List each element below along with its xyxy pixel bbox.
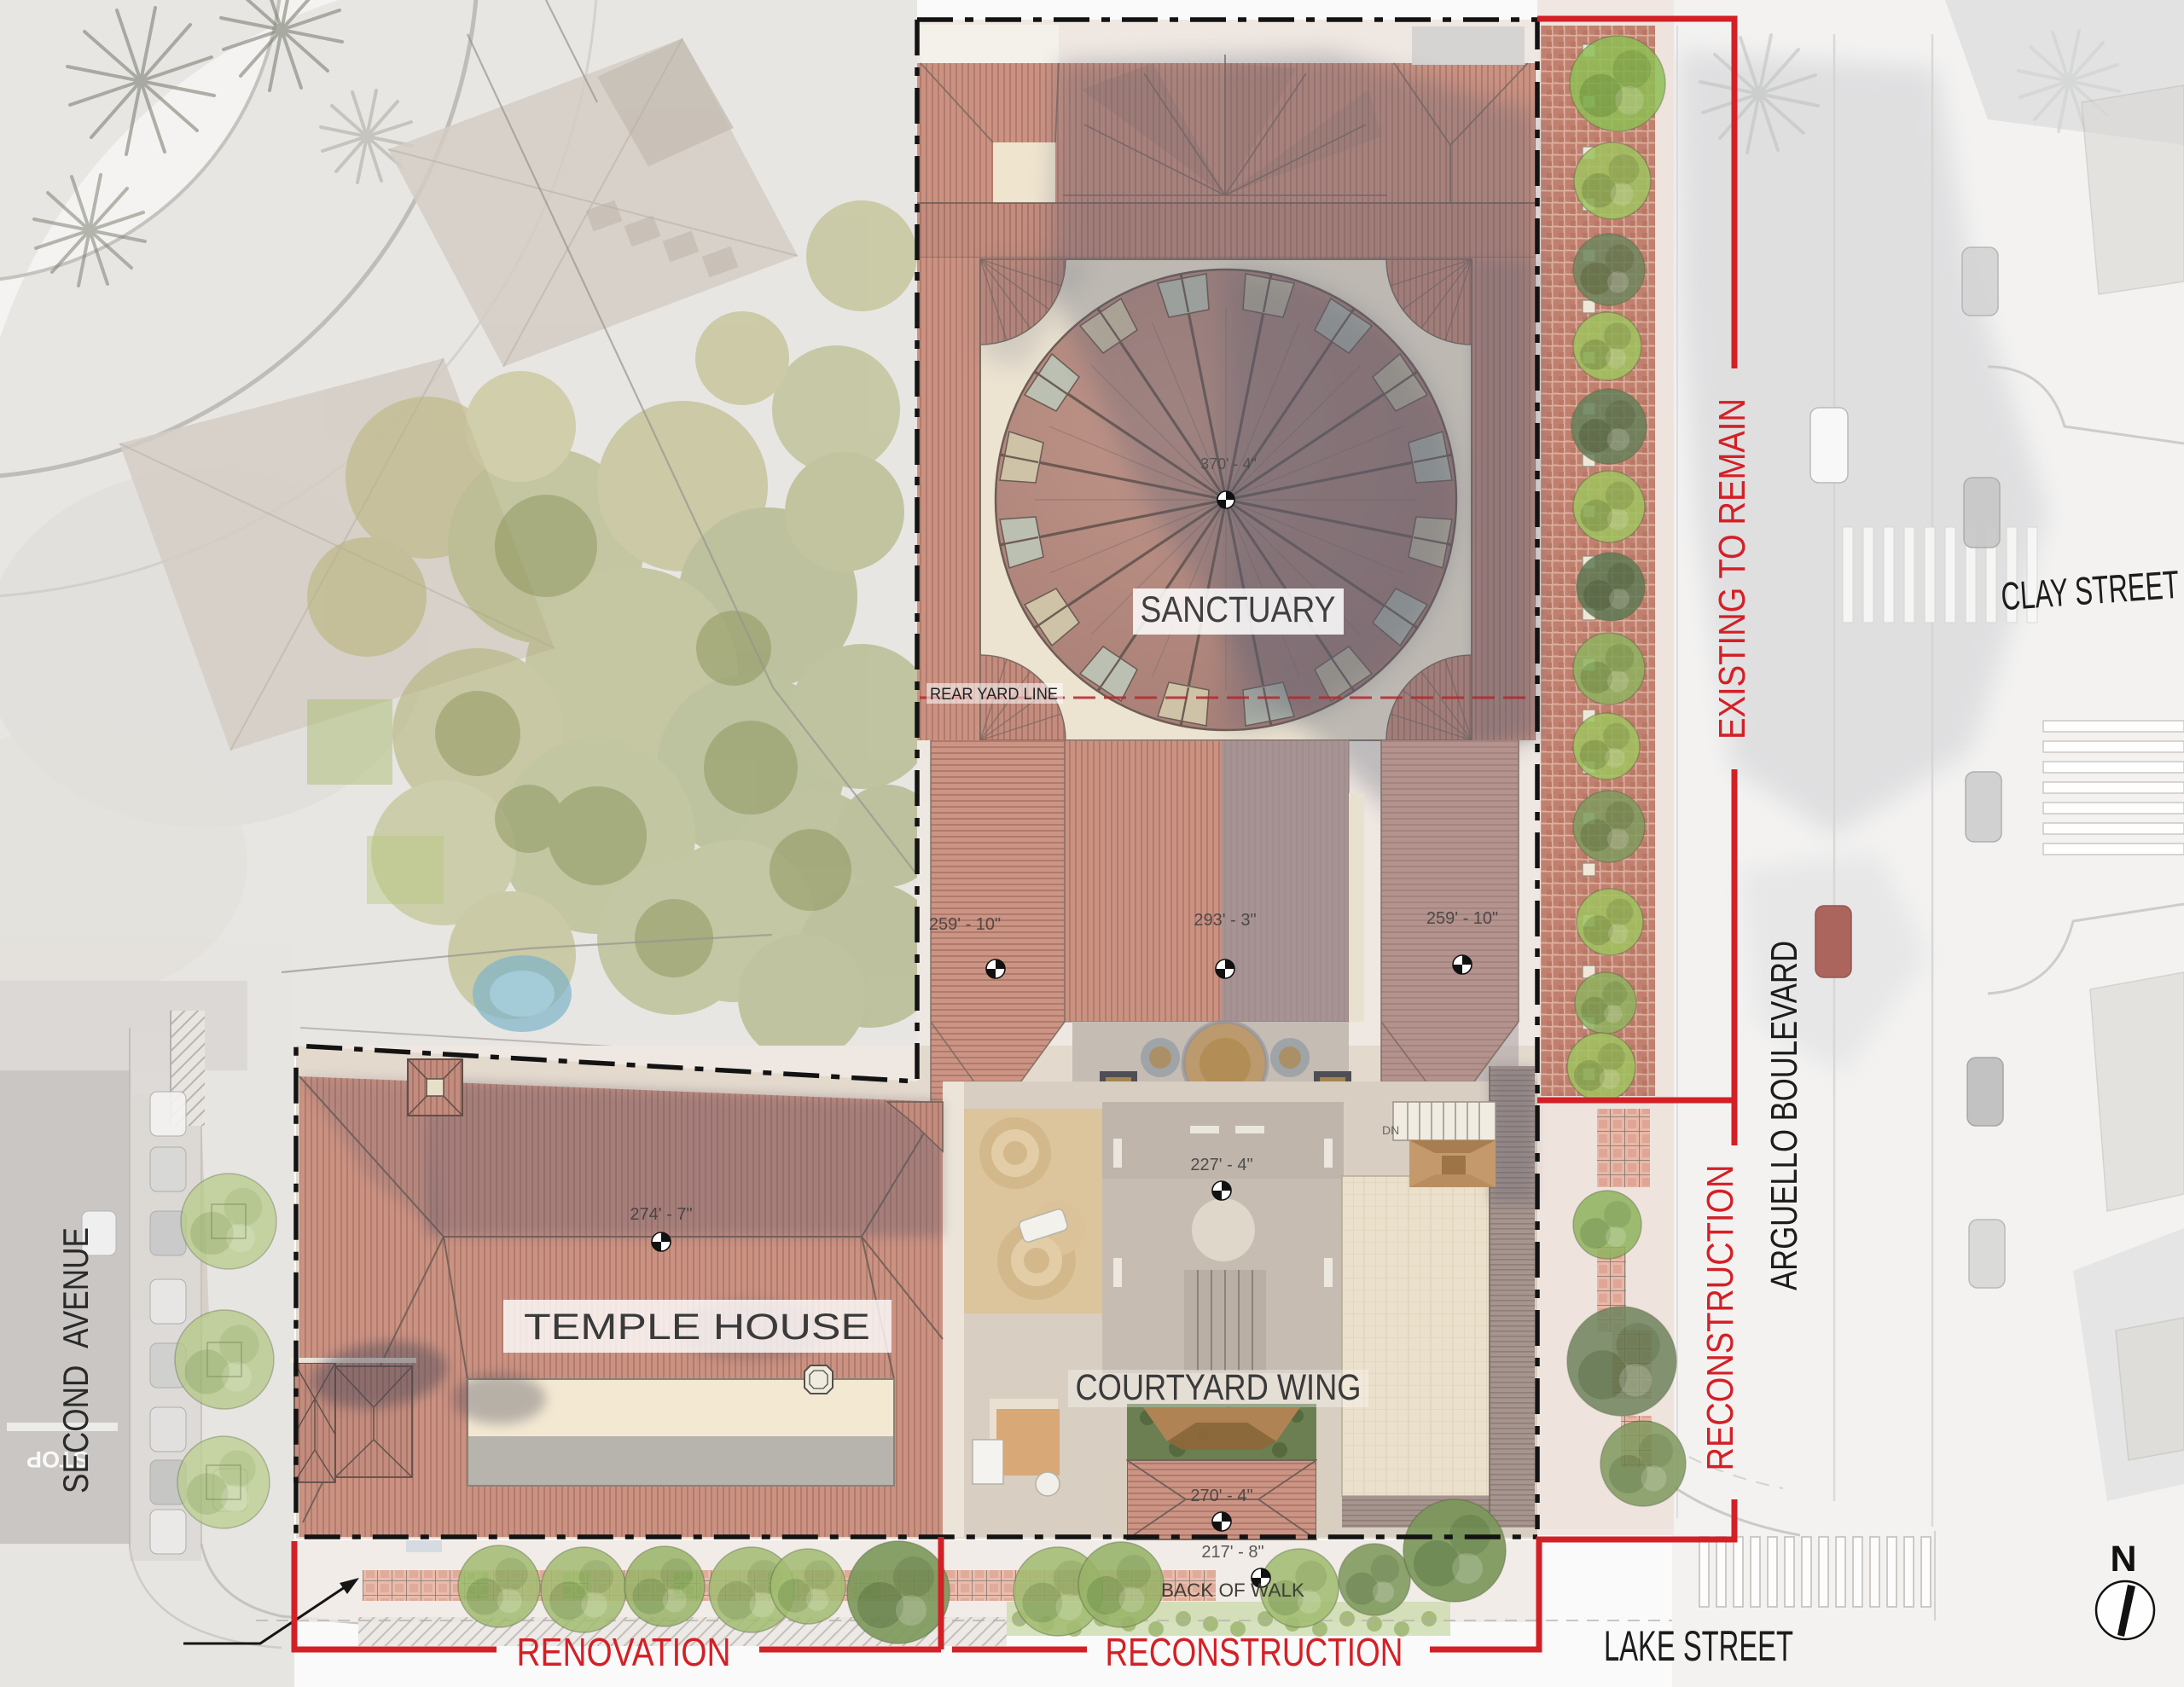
svg-text:COURTYARD WING: COURTYARD WING xyxy=(1076,1367,1362,1408)
svg-text:370' - 4": 370' - 4" xyxy=(1200,455,1257,472)
svg-text:REAR YARD LINE: REAR YARD LINE xyxy=(930,686,1058,704)
svg-text:259' - 10": 259' - 10" xyxy=(929,915,1001,934)
svg-text:SANCTUARY: SANCTUARY xyxy=(1141,589,1336,630)
svg-text:293' - 3": 293' - 3" xyxy=(1194,911,1256,930)
svg-text:270' - 4": 270' - 4" xyxy=(1190,1487,1252,1505)
svg-text:LAKE STREET: LAKE STREET xyxy=(1604,1622,1793,1670)
svg-text:DN: DN xyxy=(1382,1123,1399,1137)
svg-text:EXISTING TO REMAIN: EXISTING TO REMAIN xyxy=(1711,398,1753,739)
svg-text:274' - 7": 274' - 7" xyxy=(630,1205,692,1224)
svg-text:TEMPLE HOUSE: TEMPLE HOUSE xyxy=(524,1307,870,1348)
svg-text:RECONSTRUCTION: RECONSTRUCTION xyxy=(1699,1165,1741,1471)
svg-text:227' - 4": 227' - 4" xyxy=(1190,1156,1252,1174)
svg-text:RENOVATION: RENOVATION xyxy=(517,1630,731,1674)
svg-text:259' - 10": 259' - 10" xyxy=(1426,909,1498,928)
svg-text:N: N xyxy=(2110,1539,2136,1580)
svg-text:SECOND AVENUE: SECOND AVENUE xyxy=(55,1227,96,1493)
svg-text:RECONSTRUCTION: RECONSTRUCTION xyxy=(1106,1630,1403,1674)
svg-text:BACK OF WALK: BACK OF WALK xyxy=(1161,1580,1304,1601)
svg-text:ARGUELLO BOULEVARD: ARGUELLO BOULEVARD xyxy=(1763,941,1805,1290)
svg-text:217' - 8": 217' - 8" xyxy=(1201,1543,1263,1562)
